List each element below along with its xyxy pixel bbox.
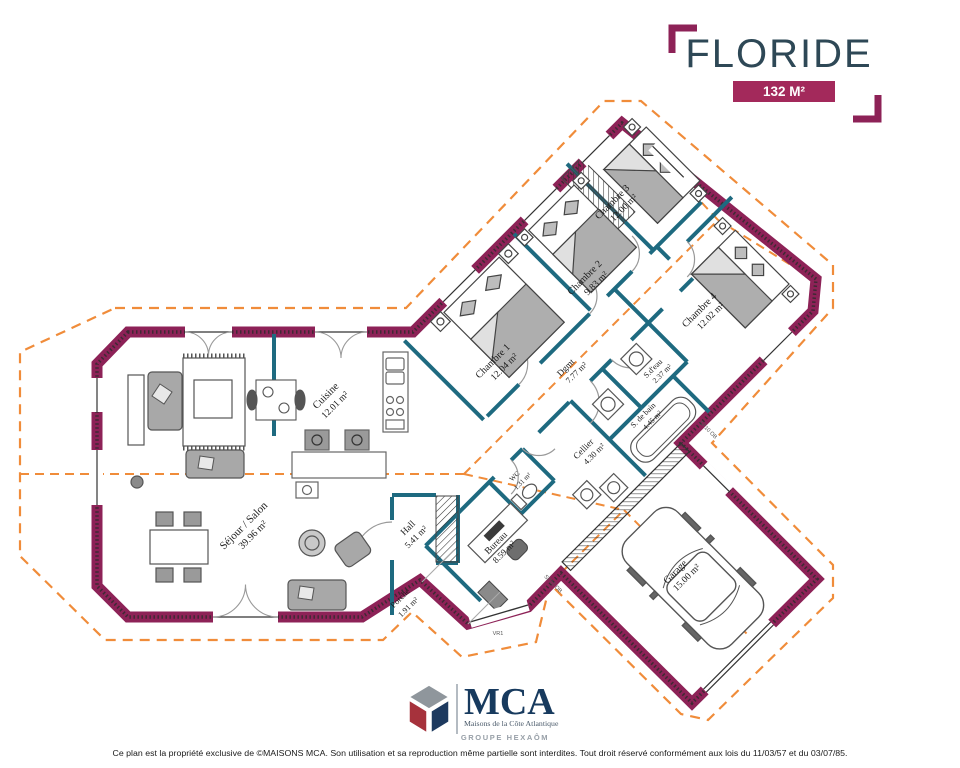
logo-group: GROUPE HEXAÔM bbox=[461, 733, 549, 742]
bracket-bottom-right-icon bbox=[853, 95, 878, 119]
hall-wardrobe bbox=[436, 496, 458, 562]
logo-acronym: MCA bbox=[464, 681, 555, 723]
plan-title: FLORIDE bbox=[685, 32, 872, 76]
legal-text: Ce plan est la propriété exclusive de ©M… bbox=[113, 749, 848, 758]
header: FLORIDE 132 M² bbox=[672, 28, 878, 119]
mca-cube-icon bbox=[409, 685, 449, 733]
window-label-vr1: VR1 bbox=[493, 631, 504, 637]
logo-name: Maisons de la Côte Atlantique bbox=[464, 719, 559, 728]
kitchen-table bbox=[247, 380, 305, 420]
plan-sheet: Chambre 1 12.04 m² Chambre 2 9.83 m² Cha… bbox=[0, 0, 960, 768]
floor-plan-canvas: Chambre 1 12.04 m² Chambre 2 9.83 m² Cha… bbox=[0, 0, 960, 768]
area-badge-text: 132 M² bbox=[763, 84, 806, 99]
